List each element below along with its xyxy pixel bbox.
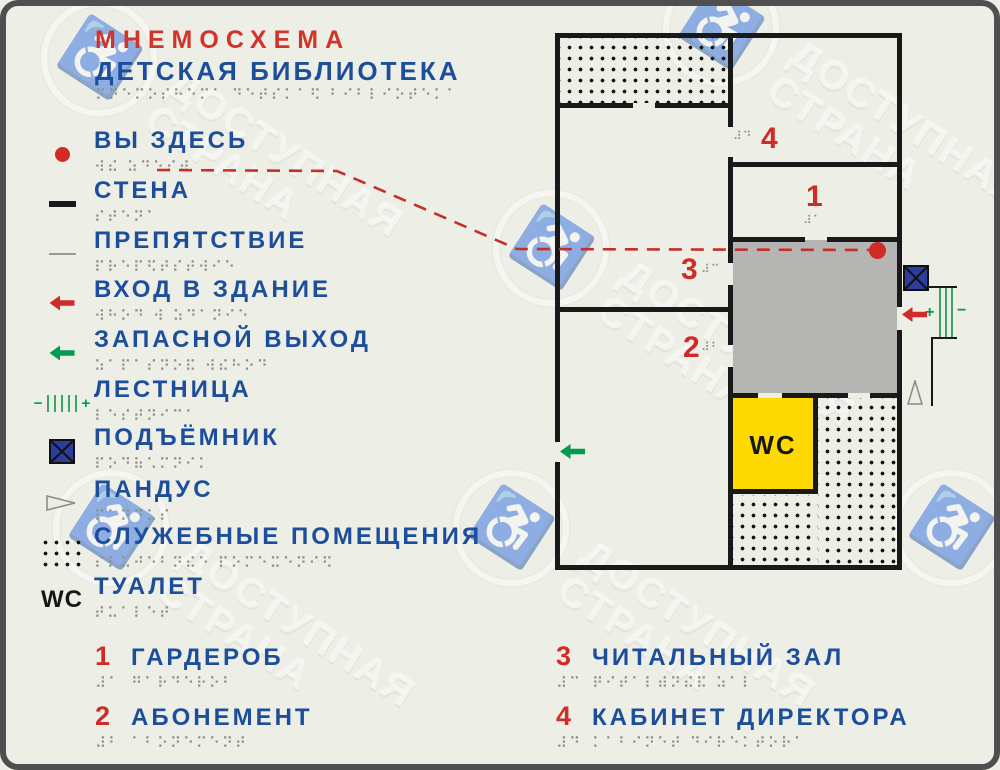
room-list-item-2: 2АБОНЕМЕНТ ⠼⠃⠁⠃⠕⠝⠑⠍⠑⠝⠞ (95, 701, 313, 751)
stairs-minus-sign: − (957, 303, 966, 319)
exit-arrow-icon (50, 346, 75, 361)
lift-icon (49, 439, 75, 464)
wc-letters-icon: WC (41, 586, 83, 614)
legend-item-wall: СТЕНА ⠎⠞⠑⠝⠁ (30, 177, 191, 225)
room-number-braille: ⠼⠉ (556, 676, 592, 691)
room-name-braille: ⠛⠁⠗⠙⠑⠗⠕⠃ (131, 676, 235, 691)
ramp-icon (46, 493, 78, 513)
sign-title: МНЕМОСХЕМА (95, 26, 350, 55)
legend-label: ТУАЛЕТ (94, 573, 205, 601)
legend-label: ЛЕСТНИЦА (94, 376, 252, 404)
wall-segment (728, 157, 733, 263)
plan-room-braille: ⠼⠃ (701, 341, 721, 353)
service-room-area (733, 495, 818, 565)
room-number-braille: ⠼⠁ (95, 676, 131, 691)
wheelchair-logo-icon: ♿ (471, 168, 631, 328)
legend-item-lift: ПОДЪЁМНИК ⠏⠕⠙⠷⠡⠍⠝⠊⠅ (30, 424, 280, 472)
room-name: ЧИТАЛЬНЫЙ ЗАЛ (592, 644, 844, 672)
wall-segment (728, 489, 818, 494)
plan-room-number: 3 (681, 255, 698, 285)
wall-segment (555, 103, 633, 108)
plan-room-braille: ⠼⠙ (733, 130, 753, 142)
legend-braille: ⠺⠮ ⠵⠙⠑⠎⠾ (94, 160, 248, 175)
room-list-item-1: 1ГАРДЕРОБ ⠼⠁⠛⠁⠗⠙⠑⠗⠕⠃ (95, 641, 284, 691)
wall-segment (555, 565, 902, 570)
emergency-exit-arrow-icon (560, 444, 585, 459)
wall-segment (827, 237, 897, 242)
room-number: 4 (556, 701, 592, 732)
room-name-braille: ⠟⠊⠞⠁⠇⠾⠝⠮⠯ ⠵⠁⠇ (592, 676, 755, 691)
room-name: КАБИНЕТ ДИРЕКТОРА (592, 704, 910, 732)
wall-segment (897, 33, 902, 307)
stairs-line (945, 288, 947, 338)
hall-area (733, 240, 897, 393)
legend-item-service-rooms: СЛУЖЕБНЫЕ ПОМЕЩЕНИЯ ⠎⠇⠥⠚⠑⠃⠝⠮⠑ ⠏⠕⠍⠑⠭⠑⠝⠊⠫ (30, 523, 482, 571)
legend-braille: ⠏⠁⠝⠙⠥⠎ (94, 509, 214, 524)
plan-room-braille: ⠼⠉ (701, 263, 721, 275)
legend-braille: ⠇⠑⠎⠞⠝⠊⠉⠁ (94, 409, 252, 424)
legend-item-entrance: ВХОД В ЗДАНИЕ ⠺⠓⠕⠙ ⠺ ⠵⠙⠁⠝⠊⠑ (30, 276, 331, 324)
room-name-braille: ⠅⠁⠃⠊⠝⠑⠞ ⠙⠊⠗⠑⠅⠞⠕⠗⠁ (592, 736, 807, 751)
railing-line (931, 337, 957, 339)
wc-room-label: WC (733, 430, 813, 461)
room-number: 3 (556, 641, 592, 672)
wall-segment (728, 33, 733, 127)
legend-label: ПРЕПЯТСТВИЕ (94, 227, 307, 255)
wall-line-icon (49, 201, 76, 207)
wall-segment (733, 162, 897, 167)
room-number-braille: ⠼⠃ (95, 736, 131, 751)
ramp-icon (907, 380, 923, 406)
service-room-area (818, 398, 897, 565)
wall-segment (897, 330, 902, 570)
wall-segment (655, 103, 730, 108)
wall-segment (870, 393, 897, 398)
title-braille: ⠍⠝⠑⠍⠕⠎⠓⠑⠍⠁ ⠙⠑⠞⠎⠅⠁⠫ ⠃⠊⠃⠇⠊⠕⠞⠑⠅⠁ (95, 88, 459, 103)
room-list-item-3: 3ЧИТАЛЬНЫЙ ЗАЛ ⠼⠉⠟⠊⠞⠁⠇⠾⠝⠮⠯ ⠵⠁⠇ (556, 641, 844, 691)
room-list-item-4: 4КАБИНЕТ ДИРЕКТОРА ⠼⠙⠅⠁⠃⠊⠝⠑⠞ ⠙⠊⠗⠑⠅⠞⠕⠗⠁ (556, 701, 910, 751)
room-name: ГАРДЕРОБ (131, 644, 284, 672)
legend-braille: ⠎⠞⠑⠝⠁ (94, 210, 191, 225)
plan-room-number: 4 (761, 124, 778, 154)
room-name-braille: ⠁⠃⠕⠝⠑⠍⠑⠝⠞ (131, 736, 248, 751)
legend-item-toilet: WC ТУАЛЕТ ⠞⠥⠁⠇⠑⠞ (30, 573, 205, 621)
wall-segment (555, 462, 560, 570)
entrance-arrow-icon (902, 307, 927, 322)
room-number: 2 (95, 701, 131, 732)
watermark-text: СТРАНА (990, 568, 1000, 750)
legend-label: СТЕНА (94, 177, 191, 205)
legend-label: ВХОД В ЗДАНИЕ (94, 276, 331, 304)
legend-braille: ⠎⠇⠥⠚⠑⠃⠝⠮⠑ ⠏⠕⠍⠑⠭⠑⠝⠊⠫ (94, 556, 482, 571)
entrance-arrow-icon (50, 296, 75, 311)
stairs-line (939, 288, 941, 338)
service-room-area (560, 38, 728, 103)
legend-label: ЗАПАСНОЙ ВЫХОД (94, 326, 371, 354)
plan-room-braille: ⠼⠁ (803, 214, 823, 226)
legend-braille: ⠏⠕⠙⠷⠡⠍⠝⠊⠅ (94, 457, 280, 472)
stairs-line (951, 288, 953, 338)
building-name: ДЕТСКАЯ БИБЛИОТЕКА (95, 56, 461, 87)
lift-icon (903, 265, 929, 291)
legend-braille: ⠵⠁⠏⠁⠎⠝⠕⠯ ⠺⠮⠓⠕⠙ (94, 359, 371, 374)
legend-item-ramp: ПАНДУС ⠏⠁⠝⠙⠥⠎ (30, 476, 214, 524)
watermark-text: СТРАНА (760, 68, 1000, 250)
you-are-here-dot (869, 242, 886, 259)
wall-segment (733, 237, 805, 242)
room-number: 1 (95, 641, 131, 672)
legend-braille: ⠞⠥⠁⠇⠑⠞ (94, 606, 205, 621)
room-number-braille: ⠼⠙ (556, 736, 592, 751)
legend-label: ПАНДУС (94, 476, 214, 504)
railing-line (931, 337, 933, 406)
legend-label: ПОДЪЁМНИК (94, 424, 280, 452)
legend-label: СЛУЖЕБНЫЕ ПОМЕЩЕНИЯ (94, 523, 482, 551)
plan-room-number: 2 (683, 333, 700, 363)
legend-item-stairs: −+ ЛЕСТНИЦА ⠇⠑⠎⠞⠝⠊⠉⠁ (30, 376, 252, 424)
legend-label: ВЫ ЗДЕСЬ (94, 127, 248, 155)
wall-segment (555, 307, 733, 312)
service-rooms-pattern-icon (38, 535, 86, 572)
wall-segment (813, 393, 818, 494)
you-are-here-dot-icon (55, 147, 70, 162)
wall-segment (728, 393, 758, 398)
legend-braille: ⠏⠗⠑⠏⠫⠞⠎⠞⠺⠊⠑ (94, 260, 307, 275)
plan-room-number: 1 (806, 182, 823, 212)
wall-segment (555, 33, 560, 442)
room-name: АБОНЕМЕНТ (131, 704, 313, 732)
tactile-floor-plan-sign: ♿ ДОСТУПНАЯСТРАНА ♿ ДОСТУПНАЯСТРАНА ♿ ДО… (0, 0, 1000, 770)
legend-braille: ⠺⠓⠕⠙ ⠺ ⠵⠙⠁⠝⠊⠑ (94, 309, 331, 324)
legend-item-emergency-exit: ЗАПАСНОЙ ВЫХОД ⠵⠁⠏⠁⠎⠝⠕⠯ ⠺⠮⠓⠕⠙ (30, 326, 371, 374)
obstacle-line-icon (49, 253, 76, 255)
legend-item-obstacle: ПРЕПЯТСТВИЕ ⠏⠗⠑⠏⠫⠞⠎⠞⠺⠊⠑ (30, 227, 307, 275)
legend-item-you-are-here: ВЫ ЗДЕСЬ ⠺⠮ ⠵⠙⠑⠎⠾ (30, 127, 248, 175)
wall-segment (728, 285, 733, 345)
stairs-icon: −+ (34, 395, 91, 412)
